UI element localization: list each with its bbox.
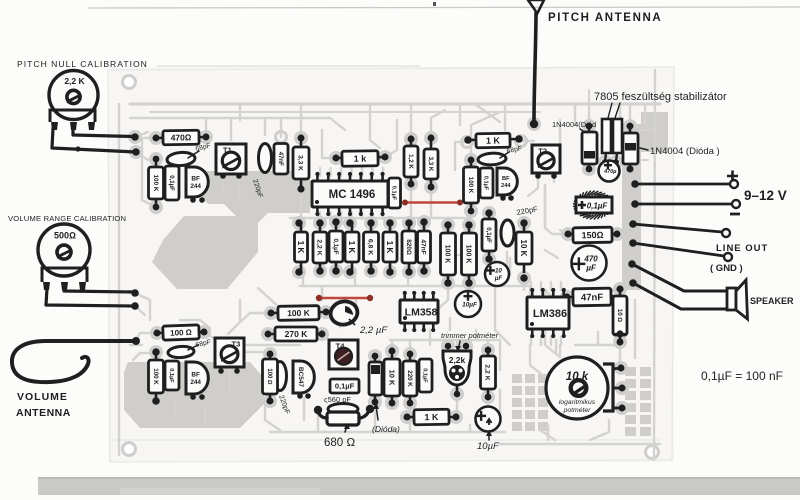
svg-text:µF: µF: [494, 275, 503, 282]
svg-text:PITCH NULL CALIBRATION: PITCH NULL CALIBRATION: [17, 59, 148, 69]
svg-text:2,2 K: 2,2 K: [64, 76, 85, 86]
svg-text:T3: T3: [231, 340, 240, 349]
svg-text:100 K: 100 K: [467, 177, 474, 194]
svg-text:LM358: LM358: [405, 306, 438, 318]
svg-text:9–12 V: 9–12 V: [744, 188, 787, 203]
svg-text:470µ: 470µ: [603, 169, 617, 175]
svg-text:244: 244: [190, 379, 201, 386]
svg-text:0,1µF: 0,1µF: [422, 368, 428, 383]
svg-text:244: 244: [501, 183, 511, 189]
svg-text:2,2k: 2,2k: [449, 355, 466, 365]
svg-text:0,1µF = 100 nF: 0,1µF = 100 nF: [701, 369, 783, 383]
svg-text:3,3 K: 3,3 K: [427, 157, 434, 172]
svg-text:T4: T4: [336, 342, 346, 351]
svg-text:potméter: potméter: [563, 407, 592, 414]
svg-text:100 K: 100 K: [152, 368, 159, 385]
svg-text:SPEAKER: SPEAKER: [750, 296, 794, 306]
svg-text:0,1µF: 0,1µF: [391, 186, 397, 201]
svg-text:2,2 µF: 2,2 µF: [359, 325, 388, 336]
svg-text:820Ω: 820Ω: [405, 239, 412, 255]
svg-text:244: 244: [190, 183, 201, 190]
svg-text:470Ω: 470Ω: [171, 132, 192, 142]
svg-text:47nF: 47nF: [277, 152, 283, 166]
svg-text:470: 470: [583, 254, 598, 263]
svg-text:1,2 K: 1,2 K: [407, 154, 414, 169]
svg-text:10 K: 10 K: [387, 370, 396, 386]
svg-text:(Dióda): (Dióda): [372, 424, 400, 434]
svg-text:T1: T1: [223, 146, 232, 155]
svg-text:LINE OUT: LINE OUT: [716, 243, 768, 254]
svg-text:2,2 K: 2,2 K: [316, 239, 323, 255]
svg-text:10: 10: [495, 268, 502, 275]
svg-text:100 Ω: 100 Ω: [170, 328, 192, 338]
svg-text:150Ω: 150Ω: [581, 230, 603, 240]
svg-text:PITCH ANTENNA: PITCH ANTENNA: [548, 12, 662, 24]
svg-text:T2: T2: [538, 147, 547, 156]
svg-text:0,1µF: 0,1µF: [168, 368, 174, 383]
svg-text:47nF: 47nF: [420, 239, 427, 254]
svg-text:logaritmikus: logaritmikus: [559, 399, 596, 406]
svg-text:6,8 K: 6,8 K: [367, 239, 374, 255]
svg-text:MC 1496: MC 1496: [329, 189, 376, 201]
svg-text:1 k: 1 k: [354, 154, 368, 164]
svg-text:3,3 K: 3,3 K: [297, 155, 304, 171]
svg-text:BF: BF: [191, 175, 200, 182]
svg-text:10 K: 10 K: [519, 240, 528, 257]
svg-text:1 K: 1 K: [347, 241, 356, 254]
svg-text:680 Ω: 680 Ω: [324, 437, 355, 449]
svg-text:BF: BF: [191, 371, 200, 378]
svg-text:1 K: 1 K: [296, 241, 305, 254]
svg-text:0,1µF: 0,1µF: [483, 176, 489, 191]
svg-text:1N4004 (Dióda ): 1N4004 (Dióda ): [650, 146, 720, 157]
svg-text:100 Ω: 100 Ω: [266, 368, 272, 385]
svg-text:0,1µF: 0,1µF: [332, 239, 339, 255]
svg-text:VOLUME RANGE CALIBRATION: VOLUME RANGE CALIBRATION: [8, 214, 126, 223]
svg-text:100 K: 100 K: [465, 245, 472, 264]
svg-text:10µF: 10µF: [477, 441, 500, 452]
svg-text:1 K: 1 K: [424, 412, 439, 422]
svg-text:VOLUME: VOLUME: [17, 391, 68, 403]
svg-text:0,1µF: 0,1µF: [335, 382, 355, 391]
svg-text:BC547: BC547: [297, 367, 304, 388]
svg-text:LM386: LM386: [533, 308, 567, 320]
svg-text:100 K: 100 K: [152, 174, 159, 191]
svg-text:2,2 K: 2,2 K: [484, 364, 491, 380]
svg-text:0,1µF: 0,1µF: [485, 227, 491, 243]
svg-text:BF: BF: [502, 176, 510, 182]
svg-text:1 K: 1 K: [385, 241, 394, 254]
svg-text:100 K: 100 K: [287, 308, 311, 318]
svg-text:47nF: 47nF: [581, 292, 604, 303]
svg-text:270 K: 270 K: [285, 329, 309, 339]
svg-text:220 K: 220 K: [406, 370, 413, 387]
svg-text:0,1µF: 0,1µF: [168, 175, 174, 191]
svg-text:1 K: 1 K: [486, 136, 501, 146]
svg-text:ANTENNA: ANTENNA: [16, 407, 71, 419]
svg-text:trimmer potméter: trimmer potméter: [441, 331, 499, 340]
svg-text:7805 feszültség stabilizátor: 7805 feszültség stabilizátor: [594, 91, 727, 103]
svg-text:0,1µF: 0,1µF: [587, 202, 609, 211]
svg-text:10 Ω: 10 Ω: [616, 309, 623, 323]
svg-text:( GND ): ( GND ): [710, 263, 743, 274]
svg-text:100 K: 100 K: [444, 245, 451, 264]
svg-text:500Ω: 500Ω: [54, 230, 76, 240]
svg-text:µF: µF: [585, 263, 597, 272]
svg-text:10µF: 10µF: [462, 301, 478, 308]
